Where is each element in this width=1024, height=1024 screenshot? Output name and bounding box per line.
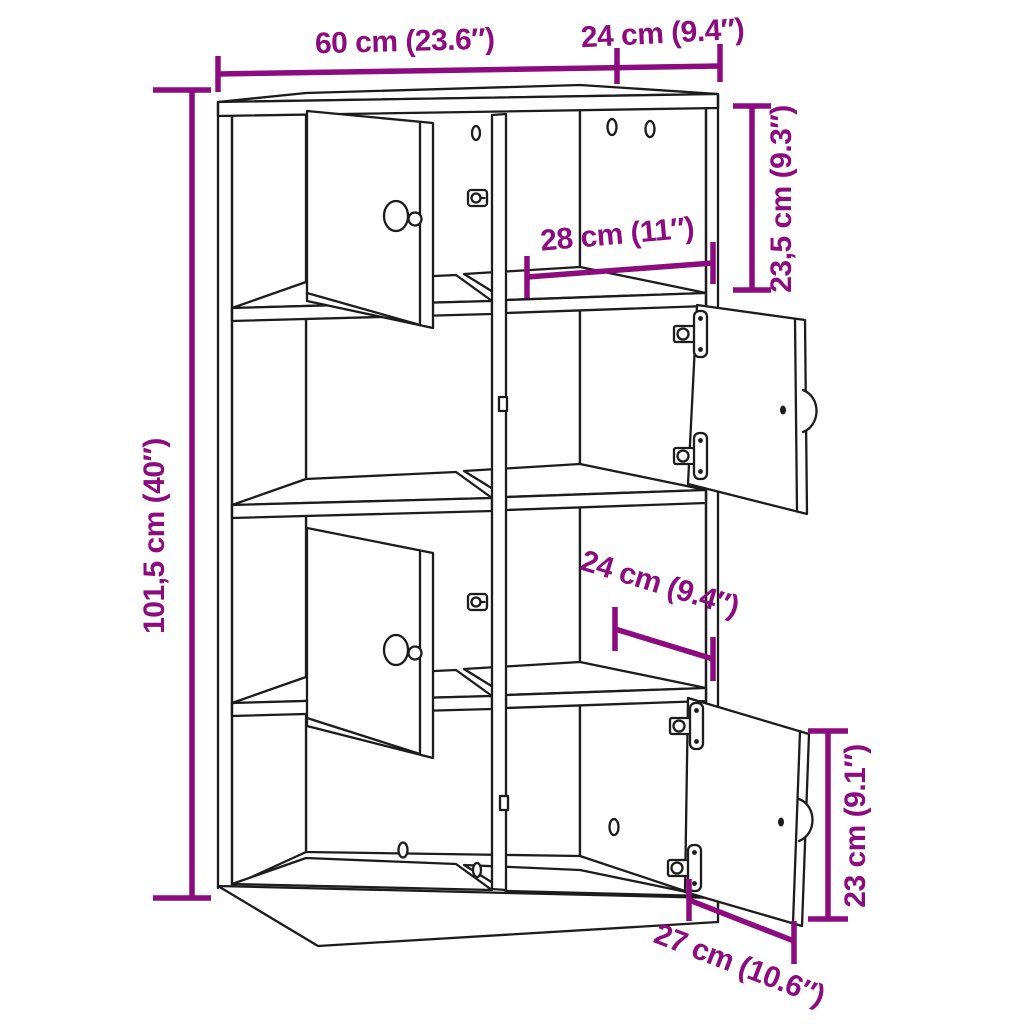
- shelf-pin-hole: [610, 819, 619, 835]
- shelf-pin-hole: [646, 121, 655, 137]
- cam-lock-icon: [468, 594, 487, 610]
- dim-label-door-height: 23 cm (9.1″): [839, 744, 872, 907]
- dim-top: 60 cm (23.6″) 24 cm (9.4″): [218, 13, 745, 92]
- dimension-diagram: 60 cm (23.6″) 24 cm (9.4″) 23,5 cm (9.3″…: [0, 0, 1024, 1024]
- cam-lock-icon: [468, 190, 487, 206]
- bookcase-diagram-svg: 60 cm (23.6″) 24 cm (9.4″) 23,5 cm (9.3″…: [0, 0, 1024, 1024]
- shelf-support-notch: [500, 796, 508, 810]
- door-middle-left: [307, 528, 433, 758]
- middle-partition: [492, 114, 506, 890]
- door-dot: [780, 406, 786, 415]
- dim-label-door-width: 27 cm (10.6″): [650, 918, 830, 1013]
- shelf-support-notch: [499, 397, 507, 411]
- shelf-pin-hole: [472, 126, 480, 140]
- door-dot: [778, 818, 784, 827]
- dim-total-height: 101,5 cm (40″): [138, 90, 211, 898]
- cabinet-carcass: [218, 85, 718, 946]
- dim-label-compartment-height: 23,5 cm (9.3″): [765, 105, 798, 292]
- dim-door-height: 23 cm (9.1″): [808, 731, 872, 919]
- door-handle-icon: [799, 799, 813, 841]
- shelf-pin-hole: [399, 843, 408, 858]
- door-upper-right: [674, 305, 817, 514]
- shelf-pin-hole: [608, 119, 617, 135]
- door-handle-icon: [803, 390, 817, 432]
- dim-label-total-height: 101,5 cm (40″): [138, 438, 171, 634]
- dim-label-width-top: 60 cm (23.6″): [315, 23, 495, 61]
- door-top-left: [307, 111, 433, 328]
- shelf-pin-hole: [473, 863, 481, 877]
- dim-compartment-height: 23,5 cm (9.3″): [733, 105, 798, 292]
